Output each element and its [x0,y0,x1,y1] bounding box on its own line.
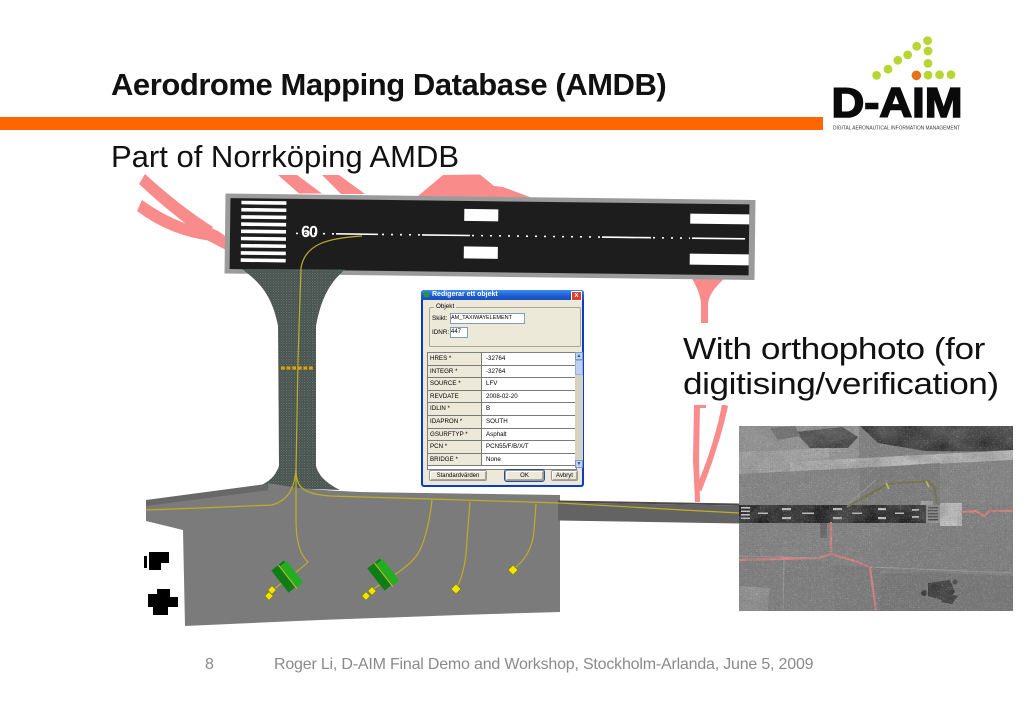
svg-text:60: 60 [301,224,318,241]
svg-text:DIGITAL AERONAUTICAL INFORMATI: DIGITAL AERONAUTICAL INFORMATION MANAGEM… [833,126,961,132]
svg-text:D-AIM: D-AIM [832,79,963,126]
